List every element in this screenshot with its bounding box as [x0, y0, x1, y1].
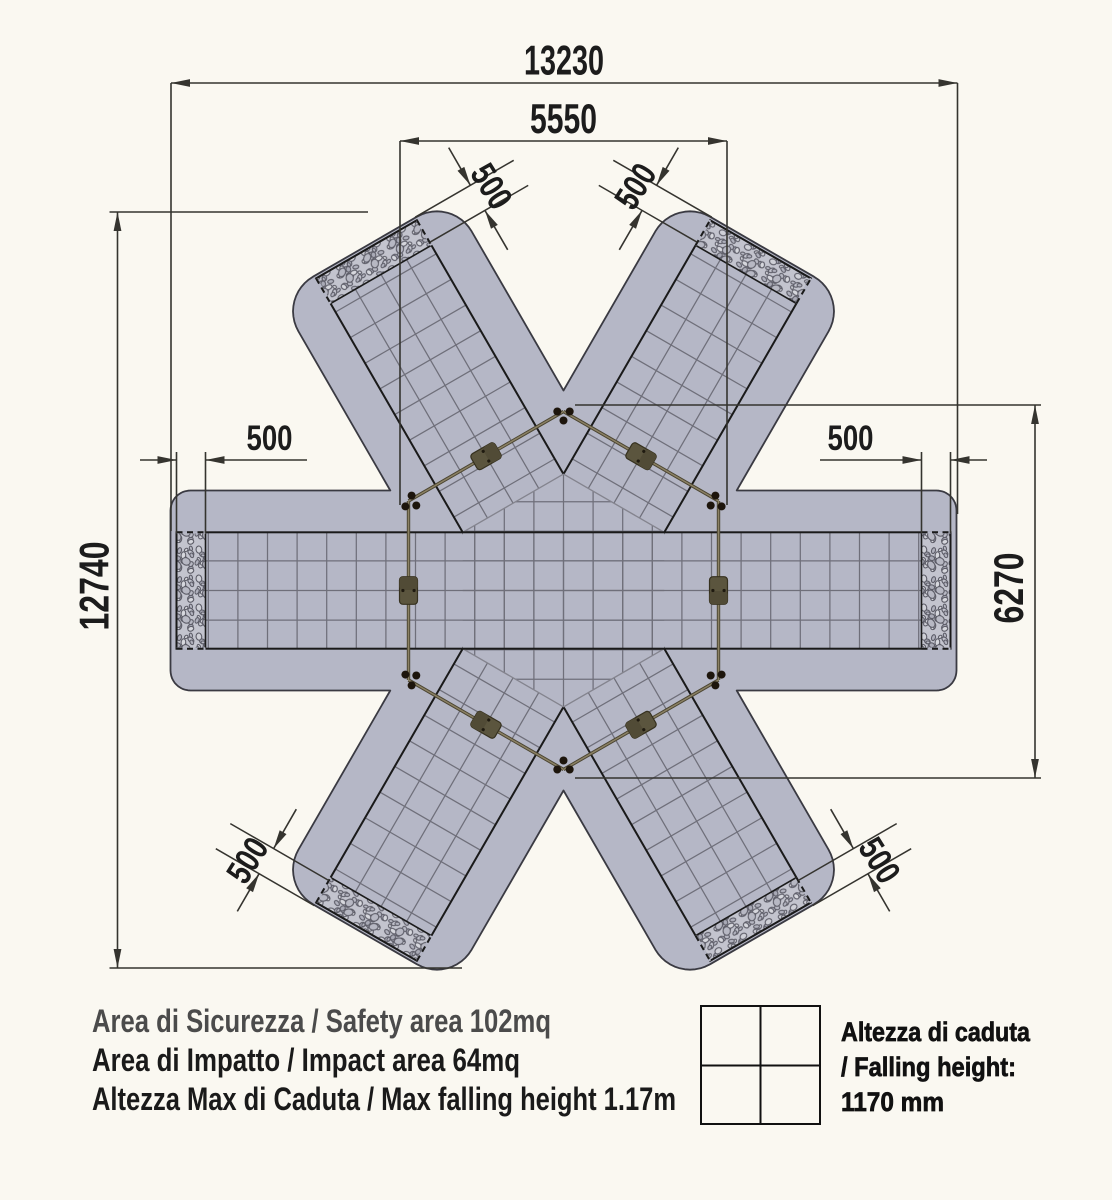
svg-text:12740: 12740	[71, 542, 118, 631]
svg-text:6270: 6270	[985, 553, 1032, 624]
svg-text:Area di Impatto / Impact area: Area di Impatto / Impact area 64mq	[92, 1042, 520, 1078]
svg-text:Area di Sicurezza / Safety are: Area di Sicurezza / Safety area 102mq	[92, 1003, 551, 1039]
svg-text:/ Falling height:: / Falling height:	[841, 1052, 1016, 1082]
svg-text:500: 500	[247, 419, 293, 458]
svg-text:13230: 13230	[524, 37, 604, 84]
svg-text:Altezza di caduta: Altezza di caduta	[841, 1017, 1031, 1047]
svg-text:500: 500	[828, 419, 874, 458]
svg-text:1170 mm: 1170 mm	[841, 1087, 944, 1117]
svg-text:Altezza Max di Caduta / Max fa: Altezza Max di Caduta / Max falling heig…	[92, 1081, 676, 1117]
svg-text:5550: 5550	[530, 95, 597, 142]
